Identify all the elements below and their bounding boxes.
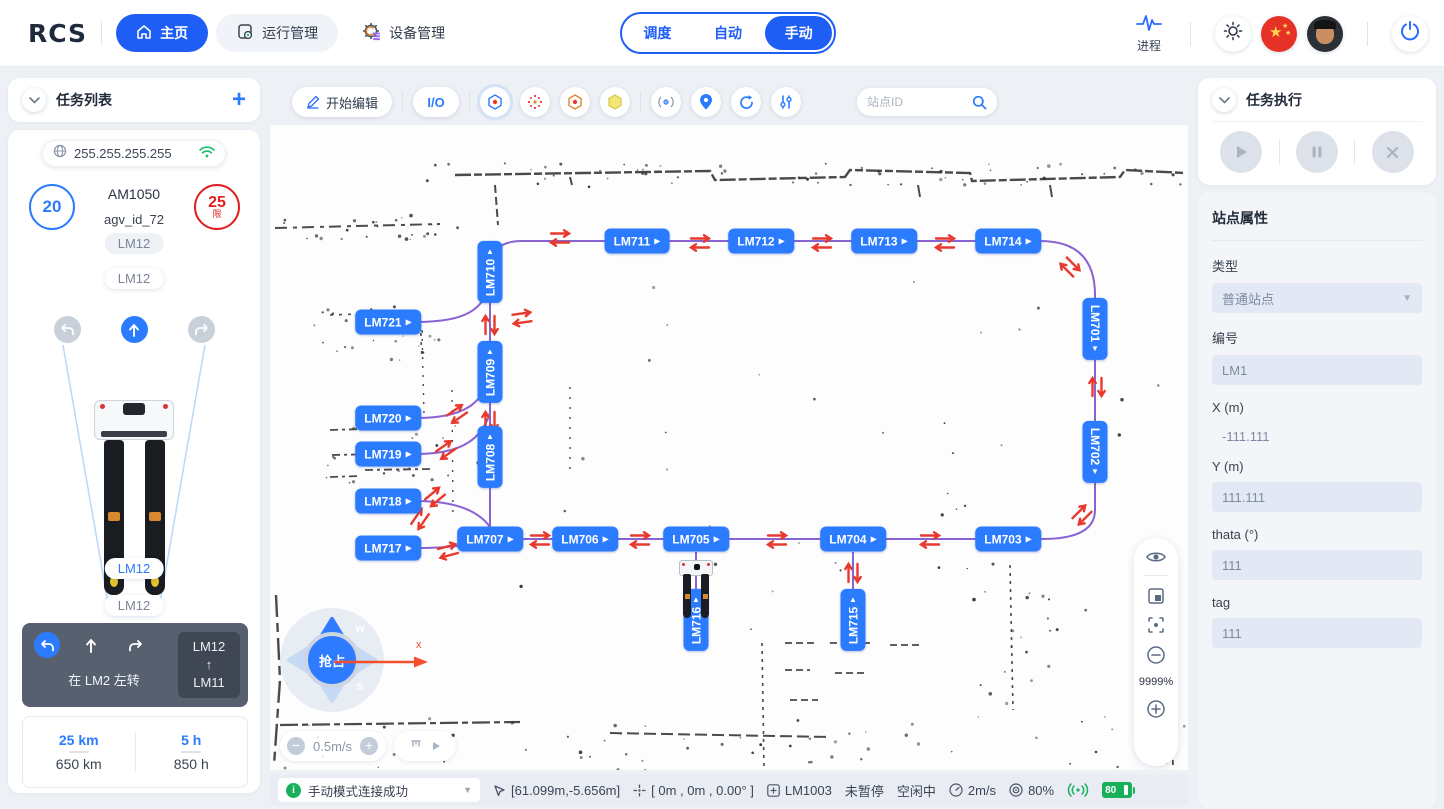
device-gear-icon	[362, 22, 381, 44]
mode-option-manual[interactable]: 手动	[765, 16, 832, 50]
user-avatar[interactable]	[1307, 16, 1343, 52]
x-label: X (m)	[1212, 400, 1422, 415]
station-LM702[interactable]: LM702▼	[1083, 421, 1108, 483]
wall-outlines	[274, 170, 1185, 770]
turn-right-button[interactable]	[188, 316, 215, 343]
chevron-down-icon	[1219, 97, 1230, 104]
station-properties-panel: 站点属性 类型 普通站点 ▼ 编号 X (m) -111.111 Y (m) t…	[1198, 192, 1436, 809]
pause-icon	[1310, 145, 1324, 159]
collapse-task-exec-button[interactable]	[1212, 88, 1236, 112]
visibility-button[interactable]	[1146, 550, 1166, 564]
station-LM707[interactable]: LM707▶	[457, 527, 523, 552]
station-LM713[interactable]: LM713▶	[851, 229, 917, 254]
chevron-down-icon: ▼	[463, 785, 472, 795]
robot-pose: [ 0m , 0m , 0.00° ]	[633, 783, 754, 798]
flag-star-icon: ★	[1269, 23, 1282, 41]
theta-field	[1212, 550, 1422, 580]
station-LM715[interactable]: ▲LM715	[841, 589, 866, 651]
turn-right-icon	[128, 639, 143, 652]
filter-button[interactable]	[771, 87, 801, 117]
task-play-button[interactable]	[1220, 131, 1262, 173]
navigation-hint-card: 在 LM2 左转 LM12↑LM11	[22, 623, 248, 707]
zoom-out-button[interactable]	[1146, 645, 1166, 665]
hexagon-station-icon	[486, 93, 504, 111]
search-icon[interactable]	[972, 95, 987, 110]
marker-button[interactable]	[691, 87, 721, 117]
type-label: 类型	[1212, 256, 1422, 275]
hexagon-dot-icon	[566, 93, 584, 111]
wifi-icon	[199, 145, 215, 163]
station-LM714[interactable]: LM714▶	[975, 229, 1041, 254]
type-select[interactable]: 普通站点 ▼	[1212, 283, 1422, 313]
task-list-title: 任务列表	[56, 90, 232, 110]
hexagon-filled-icon	[606, 93, 624, 111]
chevron-down-icon	[29, 97, 40, 104]
task-cancel-button[interactable]	[1372, 131, 1414, 173]
station-LM701[interactable]: LM701▼	[1083, 298, 1108, 360]
turn-left-icon	[40, 639, 55, 652]
x-value: -111.111	[1212, 429, 1422, 444]
odometer-card: 25 km650 km 5 h850 h	[22, 716, 248, 788]
status-message-dropdown[interactable]: i 手动模式连接成功 ▼	[278, 778, 480, 802]
sun-icon	[1223, 21, 1243, 46]
y-input[interactable]	[1222, 490, 1392, 505]
forklift-body	[94, 400, 174, 440]
station-badge-next: LM12	[105, 595, 164, 616]
arrow-up-icon	[85, 638, 97, 653]
hours-stat: 5 h850 h	[136, 732, 248, 772]
station-badge: LM12	[105, 268, 164, 289]
cursor-icon	[493, 784, 506, 797]
theme-toggle-button[interactable]	[1215, 16, 1251, 52]
gauge-icon	[949, 783, 963, 797]
y-field	[1212, 482, 1422, 512]
speed-indicator: 2m/s	[949, 783, 996, 798]
nav-item-home[interactable]: 主页	[116, 14, 208, 52]
station-LM709[interactable]: ▲LM709	[478, 341, 503, 403]
start-edit-button[interactable]: 开始编辑	[292, 87, 392, 117]
home-icon	[136, 24, 152, 43]
station-LM717[interactable]: LM717▶	[355, 536, 421, 561]
rcs-app: RCS 主页 运行管理 设备管理	[0, 0, 1444, 809]
direction-buttons	[8, 316, 260, 343]
nav-right-cluster: 进程 ★ ★ ★	[1136, 0, 1428, 67]
refresh-button[interactable]	[731, 87, 761, 117]
layer-charge-station-button[interactable]	[560, 87, 590, 117]
station-LM710[interactable]: ▲LM710	[478, 241, 503, 303]
divider	[1367, 22, 1368, 46]
nav-item-operations[interactable]: 运行管理	[216, 14, 338, 52]
close-icon	[1386, 146, 1399, 159]
nav-instruction: 在 LM2 左转	[34, 670, 174, 689]
pencil-icon	[306, 95, 320, 109]
station-LM712[interactable]: LM712▶	[728, 229, 794, 254]
station-badge-current: LM12	[105, 558, 164, 579]
top-nav: RCS 主页 运行管理 设备管理	[0, 0, 1444, 67]
station-props-title: 站点属性	[1212, 208, 1422, 228]
route-segment: LM12↑LM11	[178, 632, 240, 698]
sliders-icon	[778, 94, 794, 110]
arrow-up-icon	[128, 323, 140, 337]
fork-control[interactable]	[394, 731, 456, 761]
robot-ip-field[interactable]: 255.255.255.255	[42, 140, 226, 167]
mode-option-dispatch[interactable]: 调度	[624, 16, 691, 50]
app-logo: RCS	[28, 19, 87, 48]
map-area: 开始编辑 I/O	[270, 78, 1188, 809]
status-message: 手动模式连接成功	[308, 781, 456, 800]
go-straight-button[interactable]	[121, 316, 148, 343]
plus-square-icon	[767, 784, 780, 797]
speed-limit-badge: 25限	[194, 184, 240, 230]
pulse-icon	[1136, 13, 1162, 36]
layers-button[interactable]	[1147, 587, 1165, 605]
cursor-position: [61.099m,-5.656m]	[493, 783, 620, 798]
layer-point-cloud-button[interactable]	[520, 87, 550, 117]
map-view-toolbar: 9999%	[1134, 538, 1178, 766]
nav-item-operations-label: 运行管理	[262, 23, 318, 43]
station-search	[857, 88, 997, 116]
divider	[101, 21, 102, 45]
locate-robot-button[interactable]	[651, 87, 681, 117]
turn-left-button[interactable]	[54, 316, 81, 343]
power-button[interactable]	[1392, 16, 1428, 52]
map-robot-marker[interactable]	[679, 560, 713, 620]
station-LM711[interactable]: LM711▶	[605, 229, 670, 254]
location-pin-icon	[698, 93, 714, 111]
fork-lift-icon	[409, 739, 423, 753]
start-edit-label: 开始编辑	[326, 93, 378, 112]
task-pause-button[interactable]	[1296, 131, 1338, 173]
signal-icon	[1067, 783, 1089, 797]
info-icon: i	[286, 783, 301, 798]
layer-normal-station-button[interactable]	[480, 87, 510, 117]
straight-indicator	[78, 632, 104, 658]
y-label: Y (m)	[1212, 459, 1422, 474]
flag-star-icon: ★	[1285, 29, 1291, 37]
power-icon	[1399, 20, 1421, 47]
layer-area-button[interactable]	[600, 87, 630, 117]
tag-field	[1212, 618, 1422, 648]
robot-ip-value: 255.255.255.255	[74, 146, 192, 161]
layers-icon	[1147, 587, 1165, 605]
minus-circle-icon	[1146, 645, 1166, 665]
decrease-speed-button[interactable]: −	[287, 737, 305, 755]
station-LM703[interactable]: LM703▶	[975, 527, 1041, 552]
zoom-level: 9999%	[1139, 676, 1173, 688]
pause-state: 未暂停	[845, 781, 884, 800]
io-button[interactable]: I/O	[413, 87, 459, 117]
code-label: 编号	[1212, 328, 1422, 347]
play-icon	[1233, 144, 1249, 160]
code-input[interactable]	[1222, 363, 1392, 378]
theta-input[interactable]	[1222, 558, 1392, 573]
turn-right-indicator	[122, 632, 148, 658]
radar-icon	[657, 93, 675, 111]
distance-stat: 25 km650 km	[23, 732, 135, 772]
globe-icon	[53, 144, 67, 163]
station-LM721[interactable]: LM721▶	[355, 310, 421, 335]
current-station: LM1003	[767, 783, 832, 798]
refresh-icon	[738, 94, 755, 111]
idle-state: 空闲中	[897, 781, 936, 800]
divider	[1190, 22, 1191, 46]
station-LM708[interactable]: ▲LM708	[478, 426, 503, 488]
station-LM719[interactable]: LM719▶	[355, 442, 421, 467]
scatter-points-icon	[526, 93, 544, 111]
station-search-input[interactable]	[867, 95, 972, 109]
process-label: 进程	[1137, 37, 1161, 54]
task-exec-title: 任务执行	[1246, 90, 1302, 110]
turn-left-indicator	[34, 632, 60, 658]
operation-monitor-icon	[236, 23, 254, 44]
tag-label: tag	[1212, 595, 1422, 610]
left-sidebar: 任务列表 + 255.255.255.255 20 AM1050 agv_id_…	[8, 78, 260, 801]
station-LM720[interactable]: LM720▶	[355, 406, 421, 431]
plus-circle-icon	[1146, 699, 1166, 719]
process-button[interactable]: 进程	[1136, 13, 1162, 54]
nav-item-home-label: 主页	[160, 23, 188, 43]
eye-icon	[1146, 550, 1166, 564]
x-axis-indicator: x	[334, 655, 434, 674]
station-LM704[interactable]: LM704▶	[820, 527, 886, 552]
theta-label: thata (°)	[1212, 527, 1422, 542]
task-execution-card: 任务执行	[1198, 78, 1436, 185]
speed-step-control: − 0.5m/s +	[280, 731, 386, 761]
nav-item-devices[interactable]: 设备管理	[342, 14, 465, 52]
chevron-down-icon: ▼	[1402, 293, 1412, 304]
station-badge: LM12	[105, 233, 164, 254]
mode-option-auto[interactable]: 自动	[695, 16, 762, 50]
mode-toggle: 调度 自动 手动	[620, 12, 836, 54]
station-LM705[interactable]: LM705▶	[663, 527, 729, 552]
nav-item-devices-label: 设备管理	[389, 23, 445, 43]
language-flag-button[interactable]: ★ ★ ★	[1261, 16, 1297, 52]
battery-indicator: 80	[1102, 782, 1132, 798]
robot-card: 255.255.255.255 20 AM1050 agv_id_72 25限 …	[8, 130, 260, 793]
load-indicator: 80%	[1009, 783, 1054, 798]
center-focus-button[interactable]	[1147, 616, 1165, 634]
target-icon	[1009, 783, 1023, 797]
station-LM718[interactable]: LM718▶	[355, 489, 421, 514]
turn-left-icon	[60, 323, 75, 336]
speed-step-value: 0.5m/s	[313, 739, 352, 754]
collapse-task-list-button[interactable]	[22, 88, 46, 112]
add-task-button[interactable]: +	[232, 90, 246, 110]
task-list-header: 任务列表 +	[8, 78, 260, 122]
turn-right-icon	[194, 323, 209, 336]
focus-icon	[1147, 616, 1165, 634]
zoom-in-button[interactable]	[1146, 699, 1166, 719]
tag-input[interactable]	[1222, 626, 1392, 641]
play-icon	[431, 741, 441, 751]
code-field	[1212, 355, 1422, 385]
increase-speed-button[interactable]: +	[360, 737, 378, 755]
signal-indicator	[1067, 783, 1089, 797]
map-toolbar: 开始编辑 I/O	[270, 86, 1188, 118]
station-LM706[interactable]: LM706▶	[552, 527, 618, 552]
crosshair-icon	[633, 784, 646, 797]
map-canvas[interactable]: LM711▶LM712▶LM713▶LM714▶▲LM710LM721▶▲LM7…	[270, 125, 1188, 770]
right-sidebar: 任务执行 站点属性 类型 普通站点 ▼	[1198, 78, 1436, 809]
status-bar: i 手动模式连接成功 ▼ [61.099m,-5.656m] [ 0m , 0m…	[270, 775, 1188, 805]
